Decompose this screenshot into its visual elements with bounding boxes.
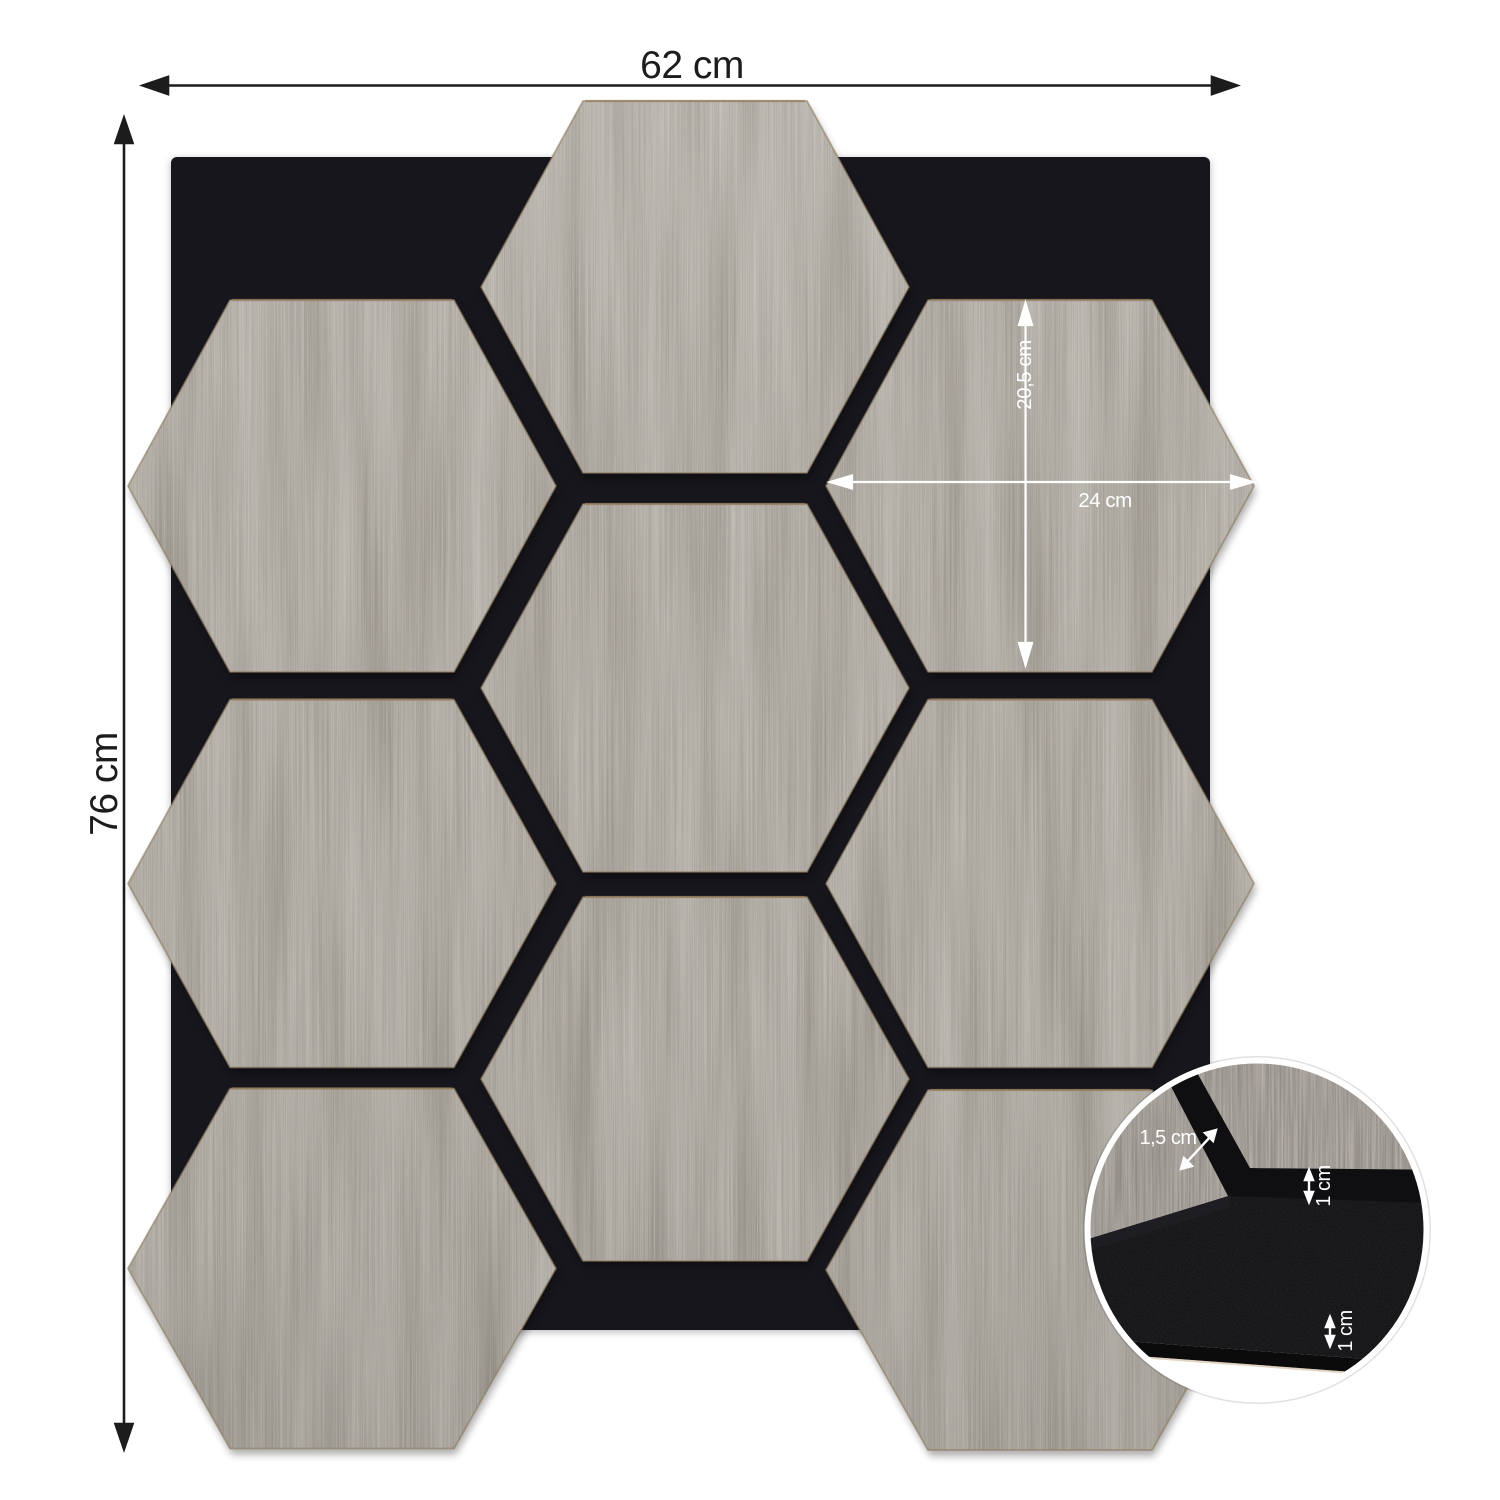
svg-text:62 cm: 62 cm	[640, 44, 744, 87]
svg-text:1 cm: 1 cm	[1313, 1165, 1335, 1206]
svg-text:20,5 cm: 20,5 cm	[1013, 340, 1036, 409]
svg-text:76 cm: 76 cm	[83, 732, 126, 836]
svg-text:1 cm: 1 cm	[1335, 1310, 1357, 1351]
svg-text:1,5 cm: 1,5 cm	[1139, 1127, 1196, 1149]
svg-text:24 cm: 24 cm	[1078, 489, 1131, 512]
